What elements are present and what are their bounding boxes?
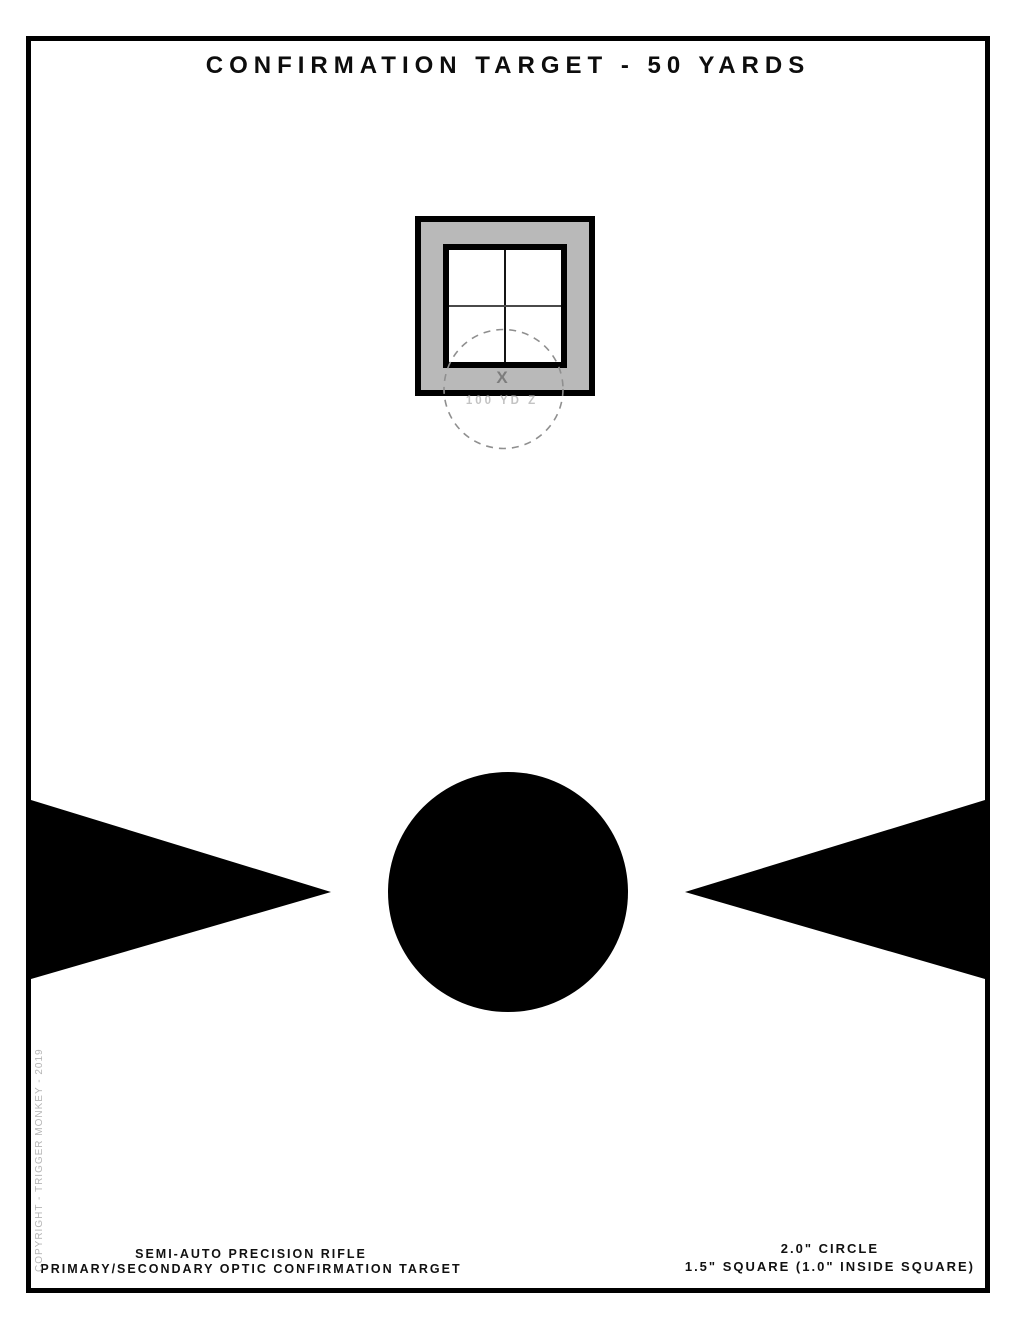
zero-x-marker: X (472, 369, 532, 386)
inner-grid-square (443, 244, 567, 368)
target-sheet-page: CONFIRMATION TARGET - 50 YARDS X 100 YD … (0, 0, 1020, 1320)
footer-left-line1: SEMI-AUTO PRECISION RIFLE (31, 1247, 471, 1262)
footer-right-line2: 1.5" SQUARE (1.0" INSIDE SQUARE) (685, 1258, 975, 1276)
copyright-vertical-text: COPYRIGHT - TRIGGER MONKEY - 2019 (34, 1048, 46, 1272)
footer-left-caption: SEMI-AUTO PRECISION RIFLE PRIMARY/SECOND… (31, 1247, 471, 1277)
crosshair-horizontal-line (449, 305, 561, 307)
footer-right-line1: 2.0" CIRCLE (685, 1240, 975, 1258)
footer-right-caption: 2.0" CIRCLE 1.5" SQUARE (1.0" INSIDE SQU… (685, 1240, 975, 1276)
zero-distance-label: 100 YD Z (402, 396, 602, 408)
page-title: CONFIRMATION TARGET - 50 YARDS (26, 52, 990, 80)
footer-left-line2: PRIMARY/SECONDARY OPTIC CONFIRMATION TAR… (31, 1262, 471, 1277)
